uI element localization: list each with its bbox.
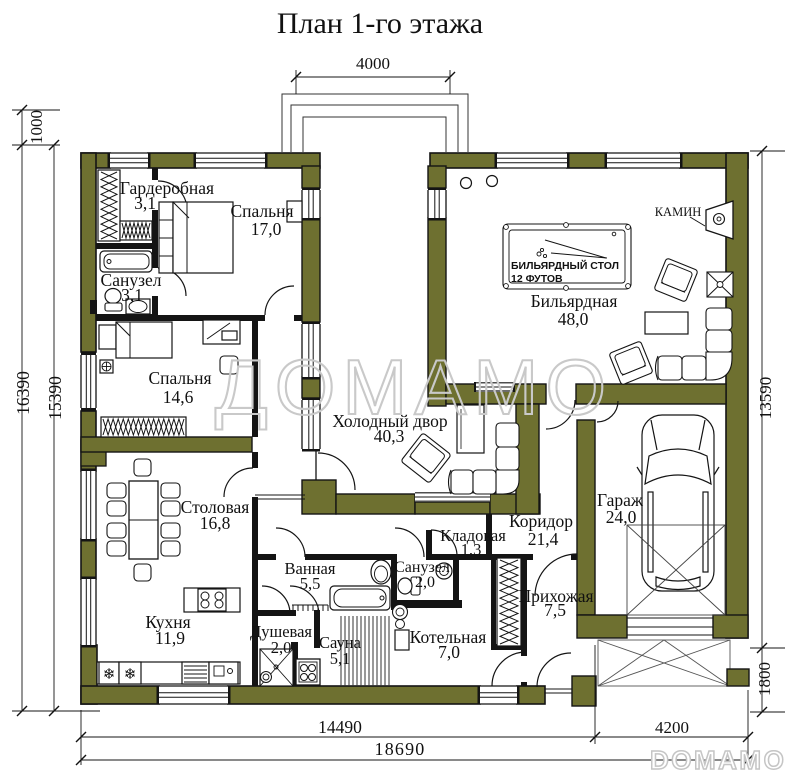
svg-text:1,3: 1,3 (461, 540, 482, 559)
svg-text:1000: 1000 (27, 110, 46, 144)
svg-text:3,1: 3,1 (134, 193, 156, 213)
svg-text:5,5: 5,5 (300, 574, 321, 593)
svg-text:2,0: 2,0 (271, 638, 292, 657)
svg-text:4200: 4200 (655, 718, 689, 737)
svg-text:Бильярдная: Бильярдная (531, 291, 618, 311)
svg-text:Спальня: Спальня (230, 201, 293, 221)
svg-text:❄: ❄ (103, 666, 116, 683)
svg-text:24,0: 24,0 (606, 507, 637, 527)
svg-text:2,0: 2,0 (415, 574, 435, 591)
svg-text:ДОМАМО: ДОМАМО (215, 343, 613, 431)
svg-text:14490: 14490 (318, 717, 362, 737)
svg-text:❄: ❄ (124, 666, 137, 683)
svg-text:16,8: 16,8 (200, 513, 231, 533)
svg-text:1800: 1800 (755, 662, 774, 696)
svg-text:7,5: 7,5 (544, 600, 566, 620)
svg-text:17,0: 17,0 (251, 219, 282, 239)
svg-text:13590: 13590 (756, 377, 775, 420)
svg-text:15390: 15390 (45, 376, 65, 420)
svg-text:11,9: 11,9 (155, 628, 185, 648)
svg-text:План 1-го этажа: План 1-го этажа (277, 7, 483, 40)
svg-text:12 ФУТОВ: 12 ФУТОВ (511, 273, 563, 285)
svg-text:16390: 16390 (13, 371, 33, 415)
svg-text:5,1: 5,1 (330, 649, 351, 668)
svg-text:4000: 4000 (356, 54, 390, 73)
svg-text:БИЛЬЯРДНЫЙ СТОЛ: БИЛЬЯРДНЫЙ СТОЛ (511, 259, 619, 272)
svg-text:3,1: 3,1 (121, 285, 143, 305)
svg-text:7,0: 7,0 (438, 642, 460, 662)
svg-text:14,6: 14,6 (163, 387, 194, 407)
svg-text:48,0: 48,0 (558, 309, 589, 329)
svg-text:18690: 18690 (375, 739, 426, 759)
svg-text:21,4: 21,4 (528, 529, 559, 549)
svg-text:DOMAMO: DOMAMO (650, 745, 786, 775)
svg-text:Спальня: Спальня (148, 368, 211, 388)
svg-text:КАМИН: КАМИН (655, 205, 702, 219)
svg-text:Коридор: Коридор (509, 511, 573, 531)
